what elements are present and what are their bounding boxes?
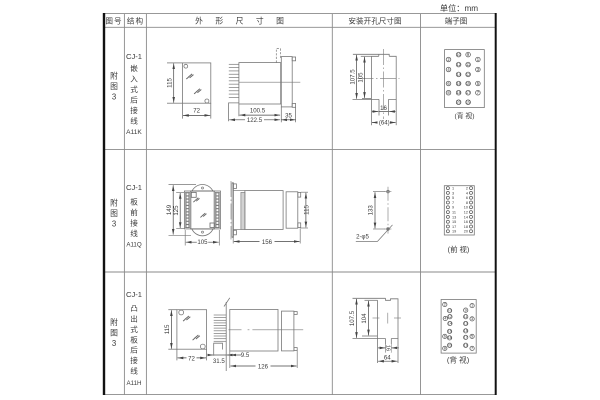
svg-text:3: 3	[112, 339, 116, 348]
svg-text:115: 115	[164, 324, 171, 334]
svg-text:12: 12	[464, 211, 468, 215]
svg-text:64: 64	[384, 354, 391, 361]
svg-text:CJ-1: CJ-1	[126, 183, 142, 192]
svg-text:100.5: 100.5	[250, 107, 266, 114]
svg-text:线: 线	[130, 366, 138, 376]
svg-text:嵌: 嵌	[130, 64, 138, 73]
svg-text:133: 133	[368, 205, 375, 216]
svg-text:105: 105	[197, 239, 208, 246]
svg-text:19: 19	[464, 342, 468, 347]
svg-text:2: 2	[466, 187, 468, 191]
svg-text:1: 1	[471, 303, 473, 308]
svg-text:13: 13	[452, 215, 456, 219]
svg-text:式: 式	[130, 84, 138, 94]
svg-text:后: 后	[130, 345, 138, 355]
svg-text:后: 后	[130, 95, 138, 105]
svg-text:凸: 凸	[130, 304, 138, 313]
svg-text:8: 8	[444, 346, 446, 351]
svg-text:12: 12	[456, 62, 461, 67]
svg-text:式: 式	[130, 324, 138, 334]
svg-text:125: 125	[173, 205, 180, 216]
svg-text:107.5: 107.5	[349, 310, 356, 326]
svg-text:16: 16	[447, 329, 451, 334]
svg-text:20: 20	[456, 100, 461, 105]
svg-text:12: 12	[448, 314, 452, 319]
svg-text:13: 13	[464, 321, 468, 326]
svg-text:板: 板	[130, 334, 138, 344]
svg-text:线: 线	[130, 228, 138, 238]
svg-text:104: 104	[361, 313, 368, 324]
svg-text:72: 72	[188, 355, 195, 362]
svg-text:31.5: 31.5	[213, 358, 225, 365]
svg-text:(前 视): (前 视)	[448, 245, 470, 254]
svg-text:附: 附	[110, 197, 118, 207]
svg-text:6: 6	[444, 334, 446, 339]
svg-text:18: 18	[464, 225, 468, 229]
svg-text:16: 16	[380, 105, 387, 112]
svg-text:115: 115	[304, 205, 311, 215]
svg-text:(64): (64)	[379, 119, 390, 126]
svg-text:7: 7	[471, 346, 473, 351]
svg-text:9: 9	[465, 307, 467, 312]
svg-text:3: 3	[112, 92, 116, 101]
svg-text:线: 线	[130, 116, 138, 126]
svg-text:2-φ5: 2-φ5	[356, 234, 369, 241]
svg-text:15: 15	[466, 81, 471, 86]
svg-text:16: 16	[456, 81, 461, 86]
svg-text:3: 3	[452, 191, 454, 195]
svg-text:19: 19	[466, 100, 471, 105]
svg-text:板: 板	[130, 196, 138, 206]
svg-text:6: 6	[466, 196, 468, 200]
svg-text:前: 前	[130, 207, 138, 217]
svg-text:图: 图	[110, 328, 118, 337]
svg-text:19: 19	[452, 230, 456, 234]
svg-text:A11Q: A11Q	[126, 241, 142, 248]
svg-text:附: 附	[110, 70, 118, 80]
svg-text:7: 7	[452, 201, 454, 205]
svg-text:14: 14	[464, 215, 468, 219]
svg-text:115: 115	[167, 78, 174, 88]
svg-text:126: 126	[258, 363, 269, 370]
svg-text:形: 形	[215, 16, 223, 25]
svg-text:16: 16	[384, 345, 390, 351]
svg-text:附: 附	[110, 317, 118, 327]
svg-text:18: 18	[447, 335, 451, 340]
svg-text:107.5: 107.5	[349, 69, 356, 85]
svg-text:35: 35	[285, 112, 292, 119]
svg-text:图: 图	[276, 16, 284, 25]
svg-text:20: 20	[464, 230, 468, 234]
svg-text:13: 13	[466, 72, 471, 77]
svg-text:A11H: A11H	[126, 380, 141, 387]
svg-text:接: 接	[130, 355, 138, 365]
svg-text:10: 10	[456, 52, 461, 57]
svg-text:接: 接	[130, 105, 138, 115]
svg-text:图: 图	[110, 82, 118, 91]
svg-text:11: 11	[466, 62, 471, 67]
svg-text:接: 接	[130, 217, 138, 227]
svg-text:14: 14	[456, 72, 461, 77]
svg-text:72: 72	[193, 108, 200, 115]
svg-text:3: 3	[471, 316, 473, 321]
svg-text:寸: 寸	[256, 15, 264, 25]
svg-text:3: 3	[112, 219, 116, 228]
svg-text:安装开孔尺寸图: 安装开孔尺寸图	[348, 15, 401, 25]
svg-text:外: 外	[195, 15, 203, 25]
svg-text:单位：mm: 单位：mm	[440, 3, 478, 13]
svg-text:尺: 尺	[236, 16, 244, 25]
svg-text:18: 18	[456, 90, 461, 95]
svg-text:11: 11	[452, 211, 456, 215]
svg-text:A11K: A11K	[126, 129, 142, 136]
svg-text:端子图: 端子图	[445, 15, 468, 25]
svg-text:149: 149	[166, 204, 173, 215]
svg-text:5: 5	[471, 334, 473, 339]
svg-text:2: 2	[444, 302, 446, 307]
svg-text:(背 视): (背 视)	[447, 355, 470, 365]
svg-text:105: 105	[357, 72, 364, 83]
svg-text:17: 17	[464, 335, 468, 340]
svg-text:CJ-1: CJ-1	[126, 290, 142, 299]
svg-text:122.5: 122.5	[247, 117, 263, 124]
svg-text:8: 8	[466, 201, 468, 205]
svg-text:出: 出	[130, 314, 138, 324]
svg-text:17: 17	[452, 225, 456, 229]
svg-text:(背 视): (背 视)	[454, 111, 474, 120]
svg-text:5: 5	[452, 196, 454, 200]
svg-text:图: 图	[110, 209, 118, 218]
svg-text:10: 10	[464, 206, 468, 210]
svg-text:156: 156	[262, 239, 273, 246]
svg-text:15: 15	[452, 220, 456, 224]
svg-text:1: 1	[452, 187, 454, 191]
svg-text:结构: 结构	[127, 15, 144, 25]
svg-text:CJ-1: CJ-1	[126, 52, 142, 61]
svg-text:9.5: 9.5	[241, 352, 250, 359]
svg-text:15: 15	[464, 328, 468, 333]
svg-text:9: 9	[452, 206, 454, 210]
svg-text:16: 16	[464, 220, 468, 224]
svg-text:入: 入	[130, 75, 138, 84]
svg-text:图号: 图号	[105, 16, 122, 25]
svg-text:17: 17	[466, 90, 471, 95]
svg-text:4: 4	[466, 191, 468, 195]
svg-text:11: 11	[464, 314, 468, 319]
